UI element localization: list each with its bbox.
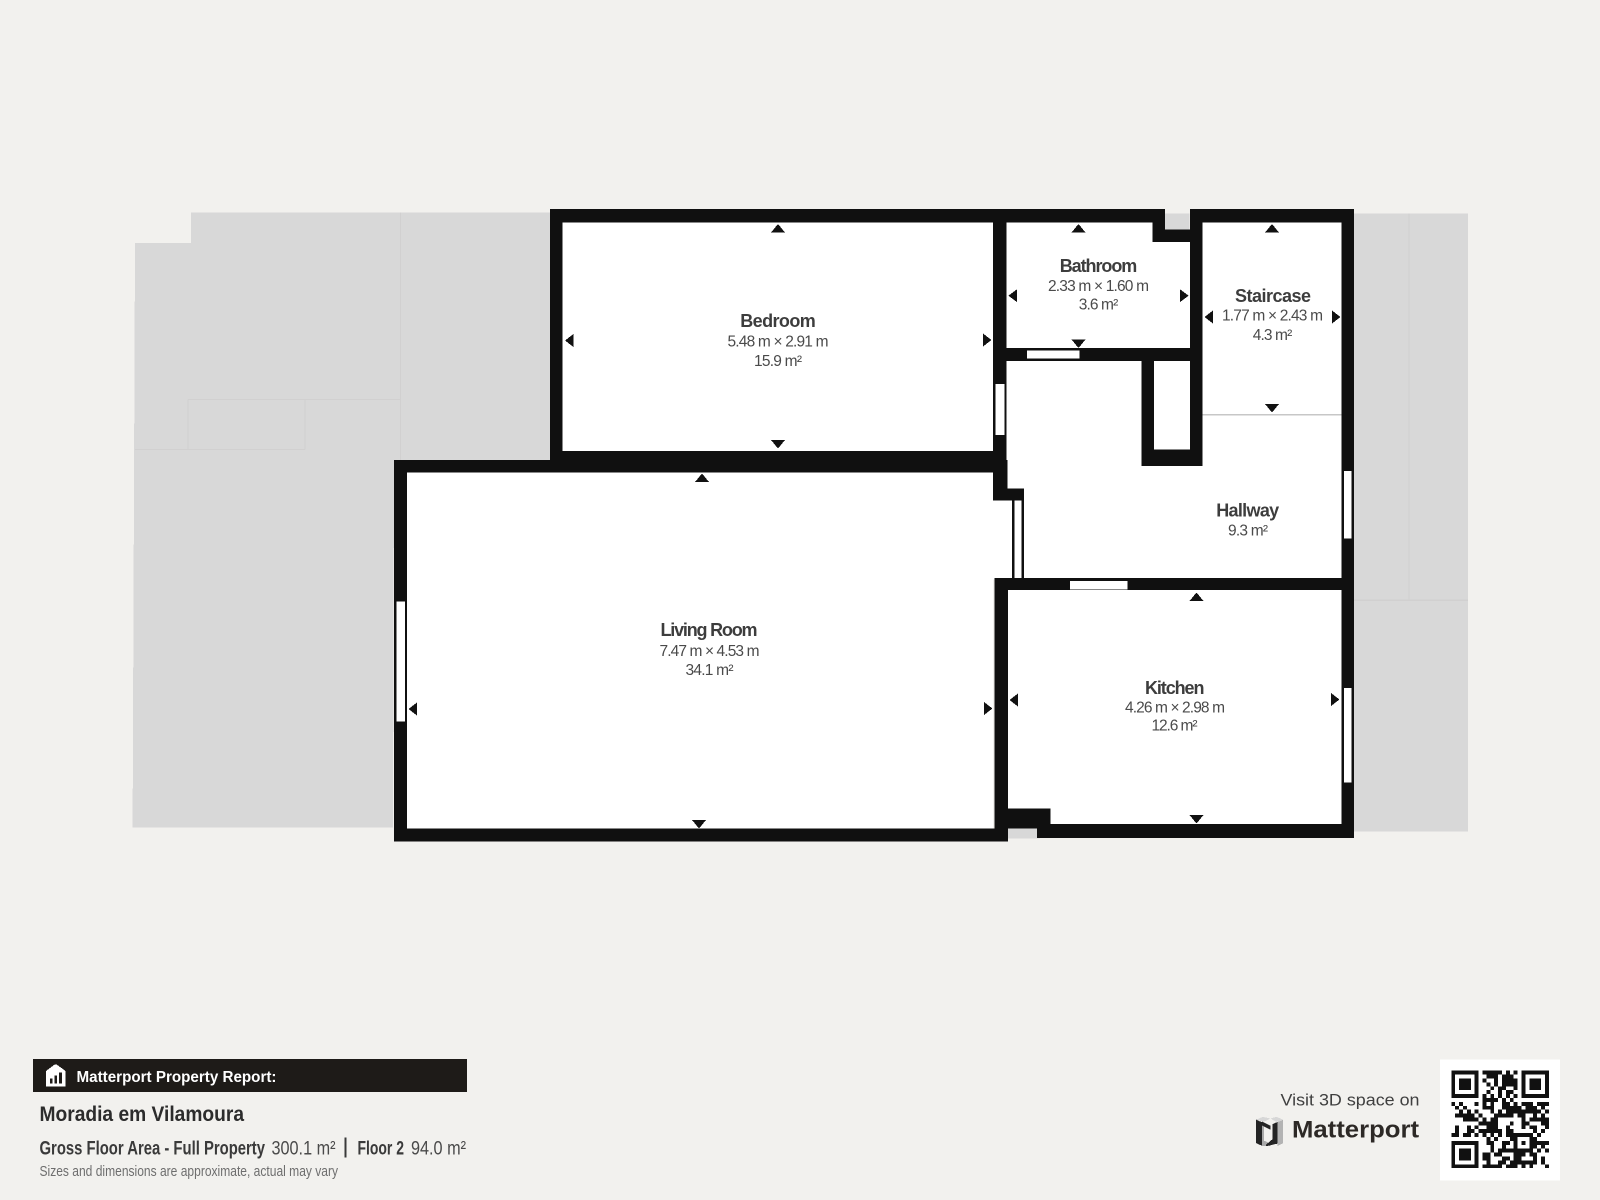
svg-text:Staircase: Staircase bbox=[1235, 286, 1311, 306]
svg-text:Floor 2: Floor 2 bbox=[358, 1138, 405, 1160]
svg-text:Living Room: Living Room bbox=[661, 620, 758, 640]
svg-text:4.3 m²: 4.3 m² bbox=[1253, 327, 1293, 344]
svg-text:34.1 m²: 34.1 m² bbox=[686, 662, 734, 679]
svg-text:12.6 m²: 12.6 m² bbox=[1152, 718, 1198, 735]
svg-text:Matterport Property Report:: Matterport Property Report: bbox=[77, 1069, 277, 1086]
svg-text:15.9 m²: 15.9 m² bbox=[754, 353, 802, 370]
svg-text:Visit 3D space on: Visit 3D space on bbox=[1281, 1091, 1420, 1110]
svg-text:94.0 m²: 94.0 m² bbox=[411, 1138, 466, 1160]
svg-text:2.33 m × 1.60 m: 2.33 m × 1.60 m bbox=[1048, 278, 1149, 295]
svg-text:Bathroom: Bathroom bbox=[1060, 256, 1138, 276]
svg-text:1.77 m × 2.43 m: 1.77 m × 2.43 m bbox=[1222, 308, 1323, 325]
svg-text:Matterport: Matterport bbox=[1292, 1117, 1419, 1144]
svg-text:5.48 m × 2.91 m: 5.48 m × 2.91 m bbox=[728, 334, 829, 351]
svg-text:Bedroom: Bedroom bbox=[740, 311, 816, 331]
svg-text:Hallway: Hallway bbox=[1216, 501, 1279, 521]
svg-text:9.3 m²: 9.3 m² bbox=[1228, 523, 1268, 540]
svg-text:7.47 m × 4.53 m: 7.47 m × 4.53 m bbox=[660, 643, 760, 660]
svg-text:3.6 m²: 3.6 m² bbox=[1079, 297, 1119, 314]
svg-text:Gross Floor Area - Full Proper: Gross Floor Area - Full Property bbox=[40, 1138, 266, 1160]
svg-text:4.26 m × 2.98 m: 4.26 m × 2.98 m bbox=[1125, 699, 1225, 716]
svg-text:Kitchen: Kitchen bbox=[1145, 678, 1205, 698]
svg-text:300.1 m²: 300.1 m² bbox=[272, 1138, 336, 1160]
svg-text:Moradia em Vilamoura: Moradia em Vilamoura bbox=[40, 1102, 245, 1126]
svg-text:Sizes and dimensions are appro: Sizes and dimensions are approximate, ac… bbox=[40, 1163, 339, 1180]
